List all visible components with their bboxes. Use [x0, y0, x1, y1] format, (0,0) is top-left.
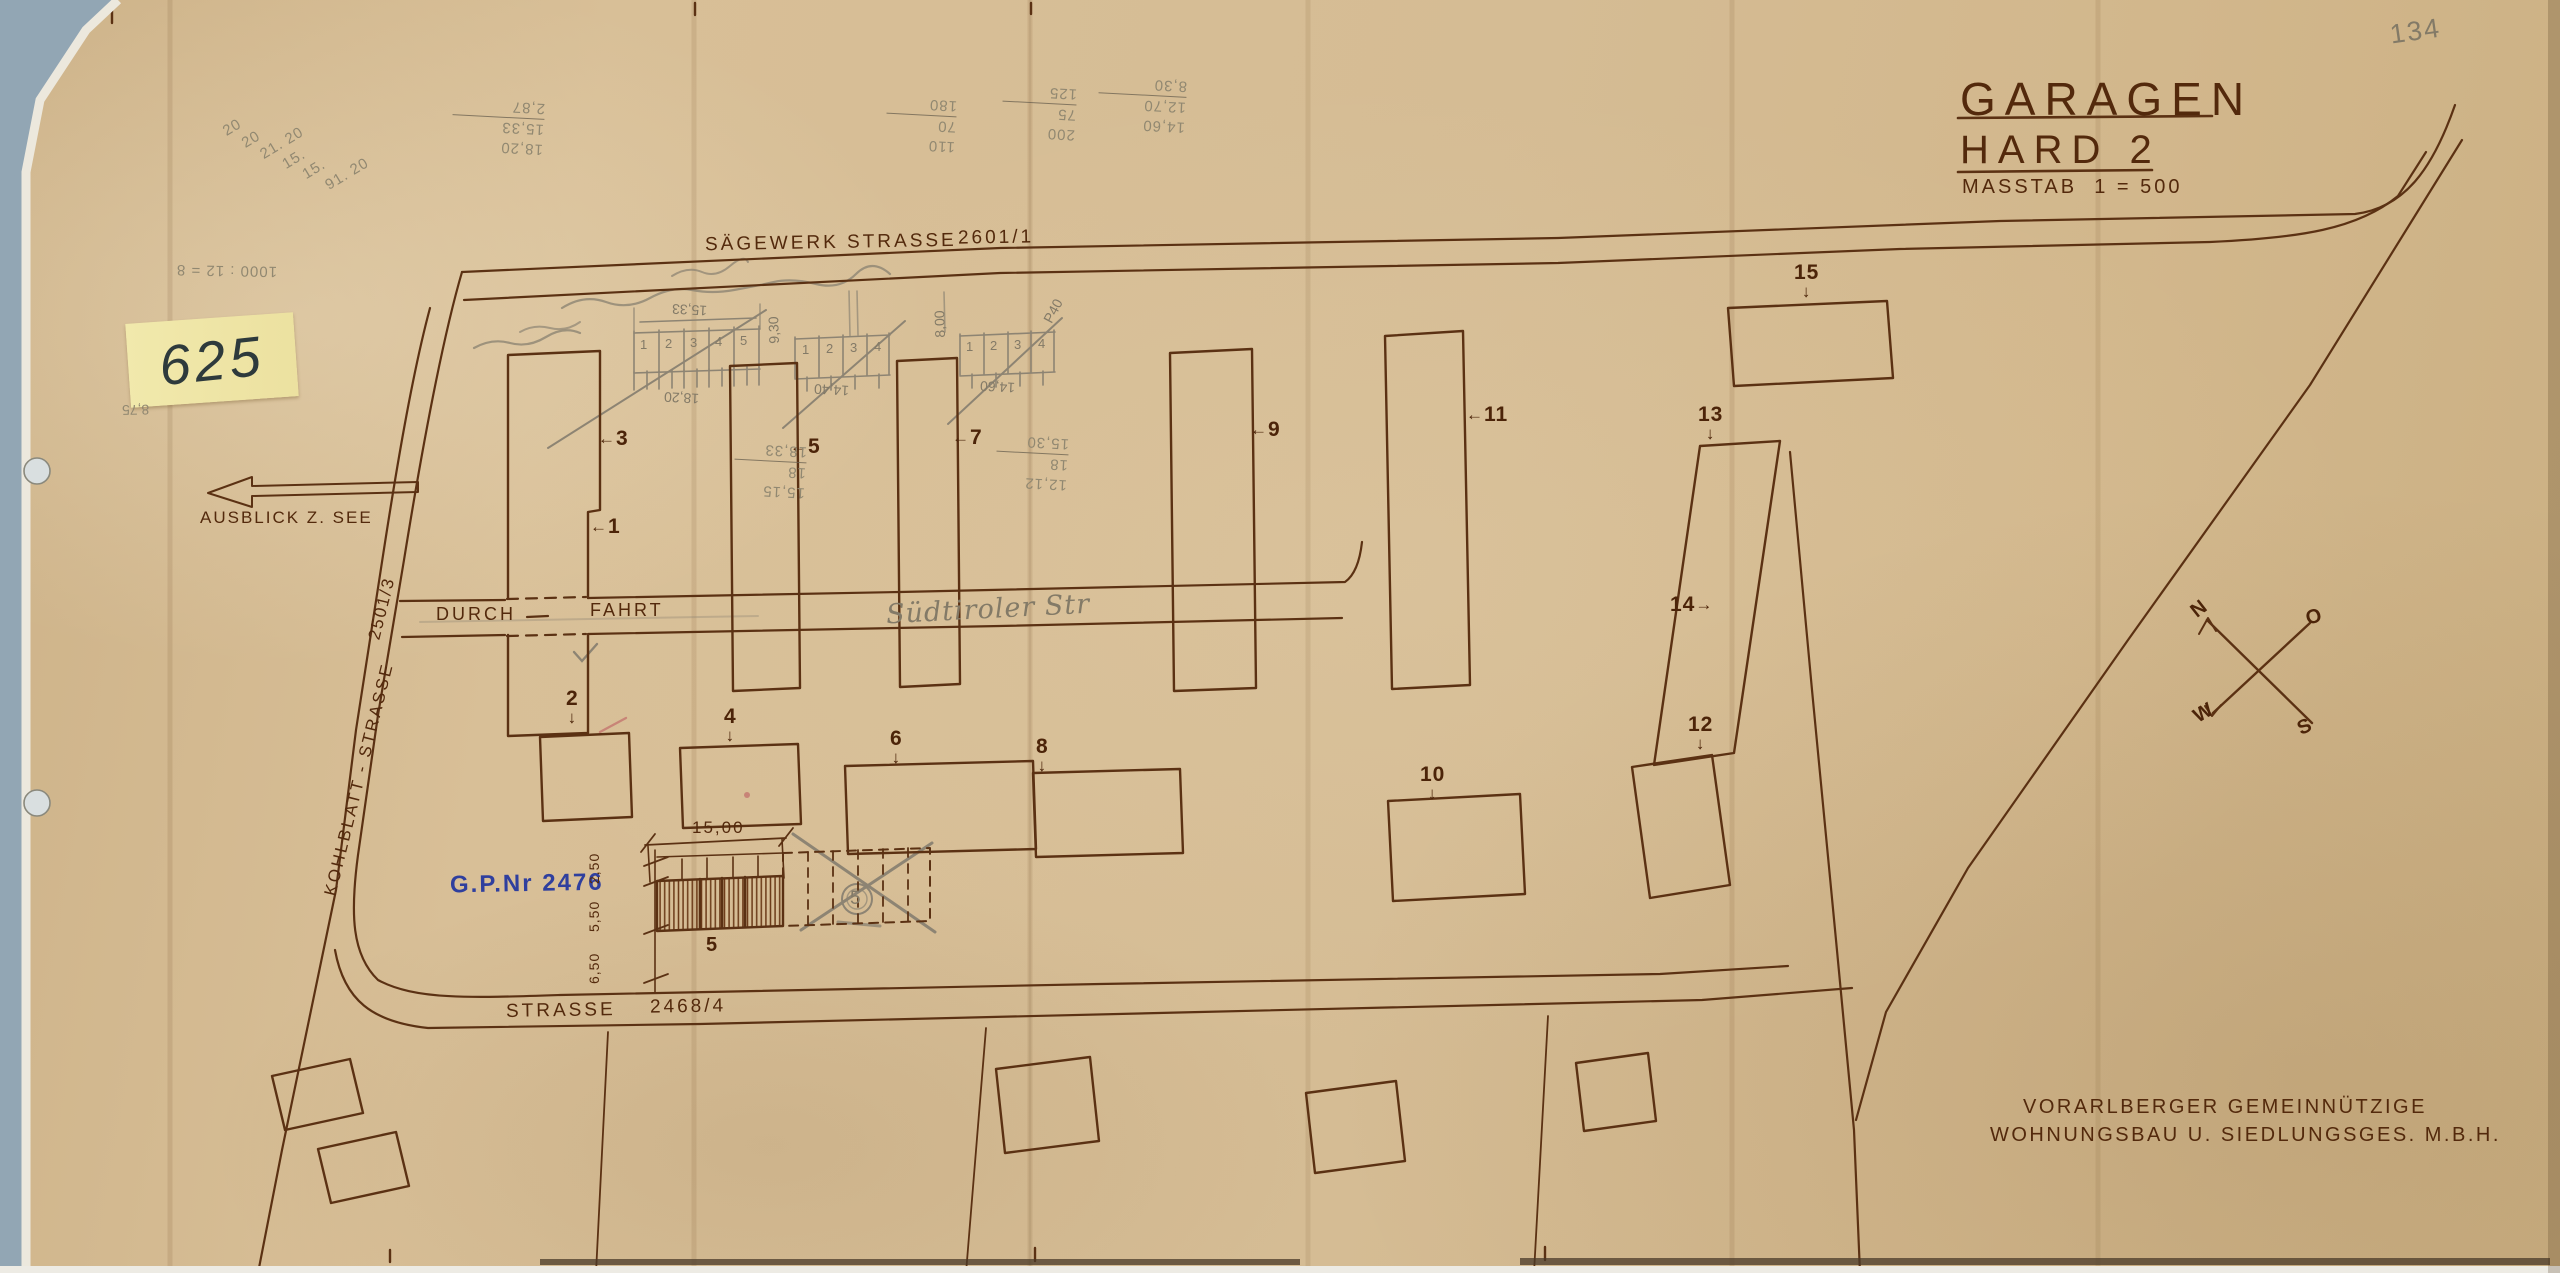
grid-c-cell: 1 [966, 339, 973, 354]
grid-b-dim-bottom: 14,40 [814, 381, 850, 399]
arrow-down-icon: ↓ [1038, 757, 1048, 774]
building-label-12: 12↓ [1688, 714, 1713, 752]
building-label-4: 4↓ [724, 706, 737, 744]
grid-a-cell: 2 [665, 336, 672, 351]
grid-c-dim-left: 8,00 [931, 310, 948, 338]
building-label-8: 8↓ [1036, 736, 1049, 774]
grid-a-cell: 5 [740, 333, 747, 348]
grid-b-cell: 2 [826, 341, 833, 356]
street-saegewerk-parcel: 2601/1 [958, 226, 1034, 249]
arrow-left-icon: ← [1250, 421, 1268, 438]
grid-c-cell: 2 [990, 338, 997, 353]
pencil-calc-subtraction: 18,20 15,33 2,87 [450, 94, 545, 159]
sticky-number: 625 [156, 322, 268, 398]
arrow-down-icon: ↓ [1428, 785, 1438, 802]
arrow-left-icon: ← [590, 518, 608, 535]
garage-width-dim: 15,00 [692, 818, 745, 838]
crossed-out-number: 5 [850, 888, 861, 910]
firm-name-line1: VORARLBERGER GEMEINNÜTZIGE [2023, 1096, 2427, 1119]
durchfahrt-label-left: DURCH [436, 604, 516, 625]
street-saegewerk-label: SÄGEWERK STRASSE [705, 230, 957, 256]
firm-name-line2: WOHNUNGSBAU U. SIEDLUNGSGES. M.B.H. [1990, 1124, 2501, 1147]
garagen-hard-2-site-plan: GARAGEN HARD 2 MASSTAB 1 = 500 134 625 S… [0, 0, 2560, 1273]
arrow-left-icon: ← [952, 429, 970, 446]
pencil-875-note: 8,75 [122, 402, 150, 418]
plan-subtitle: HARD 2 [1960, 128, 2161, 173]
arrow-down-icon: ↓ [892, 749, 902, 766]
grid-a-dim-bottom: 18,20 [664, 389, 700, 407]
building-label-7: ←7 [952, 427, 983, 448]
grid-a-cell: 1 [640, 337, 647, 352]
scale-label: MASSTAB [1962, 176, 2077, 198]
pencil-calc-3: 14,60 12,70 8,30 [1096, 72, 1187, 137]
garage-dim-c: 6,50 [586, 953, 602, 984]
garage-dim-b: 5,50 [586, 901, 602, 932]
grid-b-dim-left: 9,30 [765, 316, 782, 344]
building-label-3: ←3 [598, 428, 629, 449]
pencil-calc-5: 15,15 18 18,33 [732, 438, 807, 502]
sticky-note: 625 [125, 312, 298, 408]
arrow-down-icon: ↓ [1802, 283, 1812, 300]
arrow-left-icon: ← [1466, 406, 1484, 423]
arrow-left-icon: ← [598, 430, 616, 447]
plan-title: GARAGEN [1960, 72, 2253, 126]
building-label-14: 14→ [1670, 594, 1713, 615]
grid-c-cell: 4 [1038, 336, 1045, 351]
grid-c-dim-bottom: 14,60 [980, 378, 1016, 396]
grid-a-cell: 3 [690, 335, 697, 350]
pencil-calc-1: 110 70 180 [884, 92, 957, 156]
grid-c-cell: 3 [1014, 337, 1021, 352]
grid-a-cell: 4 [715, 334, 722, 349]
building-label-10: 10↓ [1420, 764, 1445, 802]
arrow-down-icon: ↓ [1696, 735, 1706, 752]
grid-a-dim-top: 15,33 [672, 301, 708, 319]
pencil-division-note: 1000 : 12 = 8 [176, 261, 277, 280]
street-south-label: STRASSE [506, 999, 616, 1023]
pencil-calc-6: 12,12 18 15,30 [994, 430, 1069, 494]
garage-dim-a: 2,50 [586, 853, 602, 884]
arrow-down-icon: ↓ [568, 709, 578, 726]
building-label-13: 13↓ [1698, 404, 1723, 442]
scale-value: 1 = 500 [2094, 176, 2182, 198]
building-label-6: 6↓ [890, 728, 903, 766]
grid-b-cell: 4 [874, 339, 881, 354]
parcel-number-blue: G.P.Nr 2476 [450, 869, 604, 900]
garage-block-label: 5 [706, 934, 717, 957]
pencil-calc-2: 200 75 125 [1000, 80, 1077, 144]
ausblick-caption: AUSBLICK Z. SEE [200, 508, 373, 528]
building-label-11: ←11 [1466, 404, 1508, 425]
arrow-down-icon: ↓ [726, 727, 736, 744]
street-south-parcel: 2468/4 [650, 995, 726, 1018]
scale-block: MASSTAB 1 = 500 [1962, 176, 2183, 199]
grid-b-cell: 1 [802, 342, 809, 357]
arrow-right-icon: → [1695, 596, 1713, 613]
building-label-9: ←9 [1250, 419, 1281, 440]
arrow-down-icon: ↓ [1706, 425, 1716, 442]
building-label-1: ←1 [590, 516, 621, 537]
building-label-2: 2↓ [566, 688, 579, 726]
grid-b-cell: 3 [850, 340, 857, 355]
durchfahrt-label-right: FAHRT [590, 600, 664, 621]
building-label-15: 15↓ [1794, 262, 1819, 300]
